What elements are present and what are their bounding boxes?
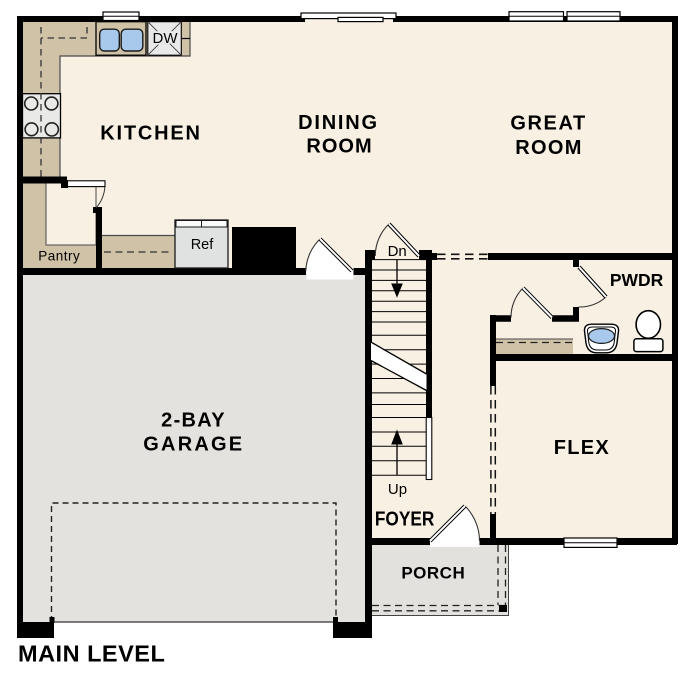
svg-text:ROOM: ROOM (306, 136, 372, 158)
svg-text:ROOM: ROOM (515, 137, 582, 159)
svg-text:DW: DW (153, 30, 179, 47)
svg-text:GREAT: GREAT (510, 112, 587, 134)
svg-text:KITCHEN: KITCHEN (100, 123, 202, 145)
svg-text:Ref: Ref (191, 237, 215, 253)
svg-text:Dn: Dn (388, 243, 407, 260)
svg-text:MAIN LEVEL: MAIN LEVEL (18, 641, 165, 667)
svg-text:Up: Up (388, 481, 407, 498)
svg-text:DINING: DINING (298, 112, 379, 134)
svg-text:FOYER: FOYER (375, 509, 435, 531)
svg-text:Pantry: Pantry (38, 249, 80, 264)
svg-text:FLEX: FLEX (554, 437, 610, 459)
svg-text:2-BAY: 2-BAY (161, 410, 226, 432)
svg-text:PWDR: PWDR (610, 270, 664, 290)
svg-text:GARAGE: GARAGE (143, 434, 244, 456)
svg-text:PORCH: PORCH (401, 563, 465, 582)
